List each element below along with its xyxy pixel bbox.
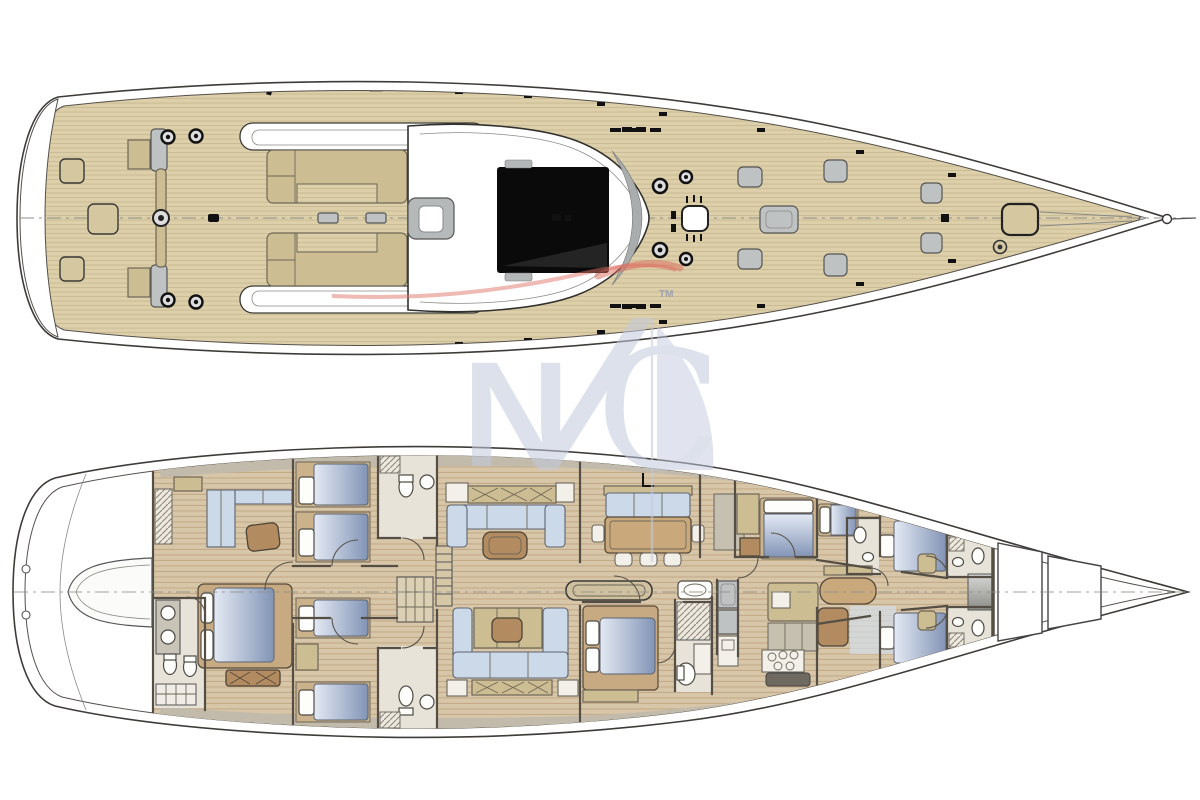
guest-bed [314,514,368,560]
dining-chair [592,525,604,542]
yacht-plans-drawing: N C TM [0,0,1200,800]
toilet-icon [972,548,984,564]
mooring-cleat-icon [208,214,219,222]
shower [949,537,964,551]
shower [677,602,710,640]
sink-icon [953,558,964,567]
dining-chair [615,553,632,566]
shower [949,633,964,647]
galley-counter [718,636,738,666]
toilet-icon [399,686,413,706]
coffee-table [483,532,527,559]
padeye-icon [565,215,571,221]
galley-counter [768,623,818,651]
owner-bed [214,588,274,662]
bar-unit [740,538,760,556]
owner-sofa [235,490,292,504]
guest-bed [314,464,368,505]
cabinet [174,477,202,491]
watermark-letter-n: N [462,330,570,498]
toilet-icon [854,527,866,543]
captain-bed [764,514,813,557]
shower [380,456,400,473]
pillow [586,648,599,672]
dining-chair [664,553,681,566]
skylight-hinge [505,160,532,168]
shower [380,712,400,728]
companionway-stairs [436,546,452,606]
pillow [299,690,314,715]
transom-fitting [22,611,30,619]
cockpit-sofa-notch [297,233,377,252]
vip-bed [600,618,655,674]
pillow [764,500,813,513]
vanity [694,644,711,674]
sink-icon [863,553,874,562]
side-table [492,618,522,642]
nightstand [296,644,318,670]
companionway [408,198,454,239]
pillow [820,507,830,533]
pillow [880,535,894,557]
deck-hatch-icon [738,167,762,187]
skylight-hinge [505,273,532,281]
trademark-symbol: TM [659,289,673,300]
sink-icon [953,618,964,627]
sink-icon [420,475,434,489]
padeye-icon [941,214,949,222]
helm-seat [128,140,150,169]
helm-seat [128,268,150,297]
yacht-plan-sheet: N C TM [0,0,1200,800]
pillow [586,621,599,645]
sofa-armrest [558,680,578,696]
ottoman [246,522,281,552]
wardrobe [155,489,172,544]
sink-icon [161,606,175,620]
interior-arrangement [153,440,993,750]
guest-bed [314,684,368,720]
shower [156,684,196,705]
toilet-icon [972,620,984,636]
sink-icon [161,630,175,644]
deck-hatch-icon [921,183,942,203]
fridge [718,610,738,634]
cockpit-table [318,213,338,223]
engine-hatch [397,577,433,622]
crew-counter [818,608,848,646]
aft-hatch-icon [60,159,84,183]
fore-hatch [1002,204,1038,235]
dining-chair [692,525,704,542]
padeye-icon [552,214,561,221]
oven [766,673,810,686]
companionway-opening [419,206,443,232]
deck-hatch-icon [824,160,847,182]
sink-icon [420,695,434,709]
sofa-armrest [447,680,467,696]
aft-hatch-icon [60,257,84,281]
deck-hatch-icon [921,233,942,253]
pillow [299,529,314,556]
crew-table [820,578,876,604]
cockpit-table [366,213,386,223]
pillow [880,627,894,649]
sink-icon [772,592,790,608]
transom-fitting [22,565,30,573]
pillow [299,477,314,504]
deck-plan [17,79,1196,355]
dining-chair [640,553,657,566]
watermark-letter-c: C [596,315,722,507]
deck-hatch-icon [824,254,847,276]
pillow [201,630,213,660]
cockpit-sofa-notch [297,184,377,203]
cooktop [762,650,804,672]
aft-hatch-icon [88,204,118,234]
dining-table [605,517,691,553]
deck-hatch-icon [738,249,762,269]
bed-foot-chest [226,670,280,686]
desk [737,494,759,534]
bow-roller-icon [1163,215,1172,224]
crew-bed [831,505,856,535]
bed-foot-cabinet [583,690,638,702]
mast-icon [682,206,708,231]
sofa-backrest-stbd [472,680,552,695]
steering-wheel-hub [158,215,164,221]
